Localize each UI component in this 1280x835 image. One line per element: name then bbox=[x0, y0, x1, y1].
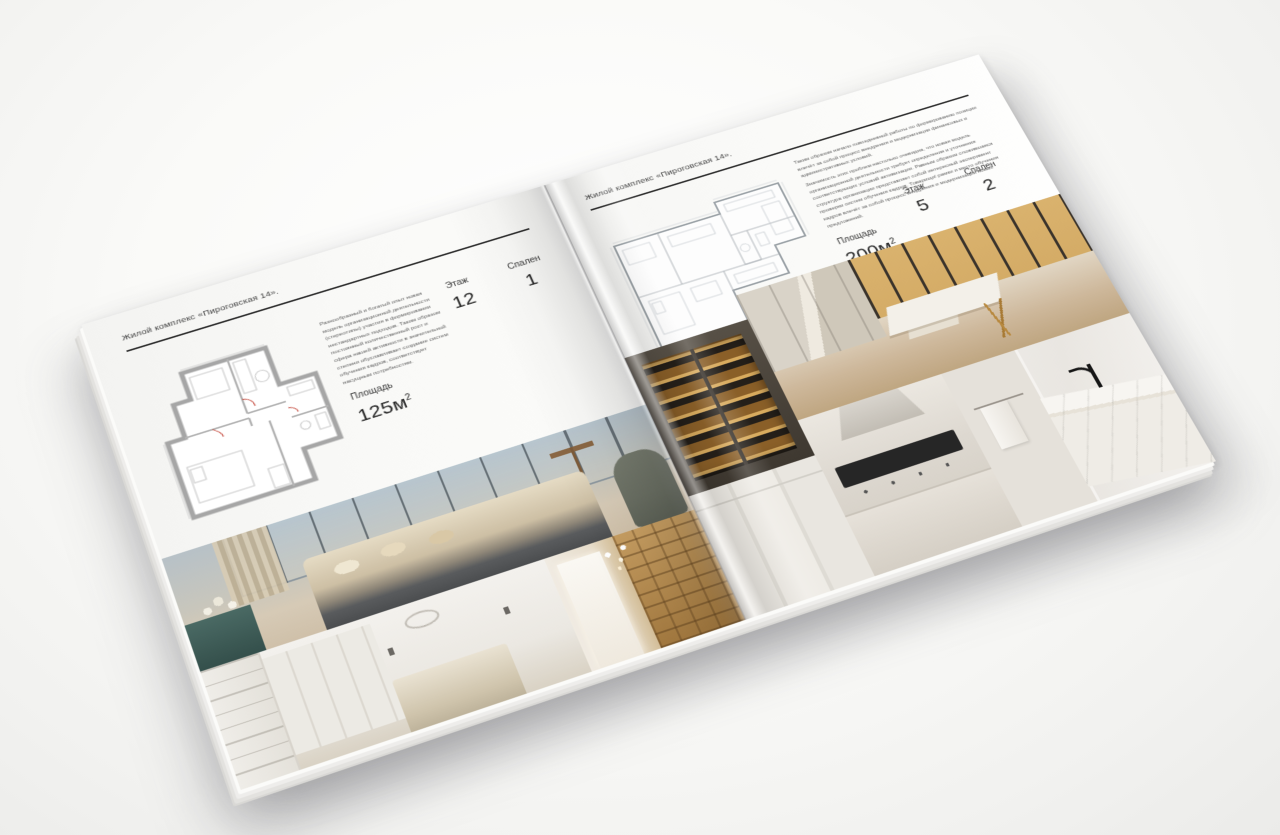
studio-background: Жилой комплекс «Пироговская 14». bbox=[0, 0, 1280, 835]
sconce bbox=[387, 647, 395, 656]
lower-cabinet bbox=[845, 467, 1022, 576]
stat-floor: Этаж 12 bbox=[428, 271, 495, 318]
bed-bench bbox=[392, 643, 527, 732]
wall-wreath bbox=[402, 606, 442, 633]
sconce bbox=[503, 606, 511, 614]
brochure-spread: Жилой комплекс «Пироговская 14». bbox=[81, 54, 1216, 789]
page-header-left: Жилой комплекс «Пироговская 14». bbox=[121, 287, 280, 343]
stat-bedrooms: Спален 1 bbox=[497, 251, 562, 297]
